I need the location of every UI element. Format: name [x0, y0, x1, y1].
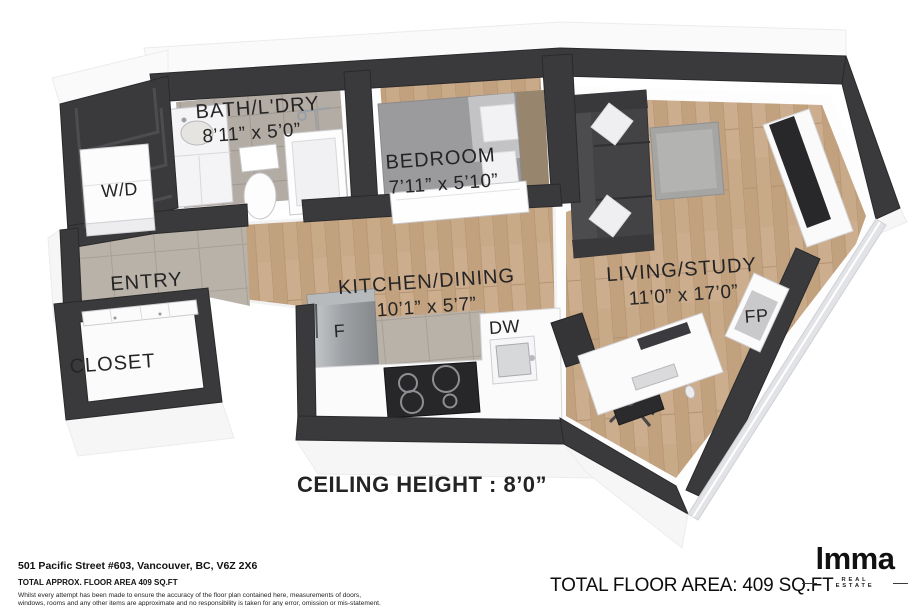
wd-label: W/D	[101, 179, 139, 201]
property-address: 501 Pacific Street #603, Vancouver, BC, …	[18, 560, 257, 572]
tagline-rule-left	[802, 583, 817, 584]
ottoman	[650, 122, 724, 200]
tagline-rule-right	[893, 583, 908, 584]
floor-plan-rendering: BATH/L'DRY 8’11” x 5’0” W/D BEDROOM 7’11…	[0, 0, 910, 606]
brand-logo-text: lmma	[802, 543, 908, 574]
pillow	[480, 104, 518, 142]
floorplan-page: BATH/L'DRY 8’11” x 5’0” W/D BEDROOM 7’11…	[0, 0, 910, 606]
disclaimer-line1: Whilst every attempt has been made to en…	[18, 592, 448, 600]
total-floor-area: TOTAL FLOOR AREA: 409 SQ.FT	[550, 575, 834, 597]
dishwasher-label: DW	[488, 316, 520, 338]
brand-logo: lmma REAL ESTATE	[802, 543, 908, 589]
disclaimer-line2: windows, rooms and any other items are a…	[18, 600, 448, 606]
approx-area-note: TOTAL APPROX. FLOOR AREA 409 SQ.FT	[18, 578, 178, 587]
disclaimer: Whilst every attempt has been made to en…	[18, 592, 448, 606]
sofa	[566, 90, 654, 258]
fireplace-label: FP	[744, 305, 769, 327]
kitchen-sink	[490, 336, 537, 384]
brand-tagline-text: REAL ESTATE	[821, 577, 890, 589]
kitchen-left-wall	[296, 304, 316, 424]
kitchen-bottom-wall	[296, 416, 564, 444]
brand-tagline: REAL ESTATE	[802, 577, 908, 589]
ceiling-height-note: CEILING HEIGHT : 8’0”	[297, 472, 547, 497]
fridge-label: F	[333, 321, 346, 342]
cooktop	[384, 362, 480, 418]
